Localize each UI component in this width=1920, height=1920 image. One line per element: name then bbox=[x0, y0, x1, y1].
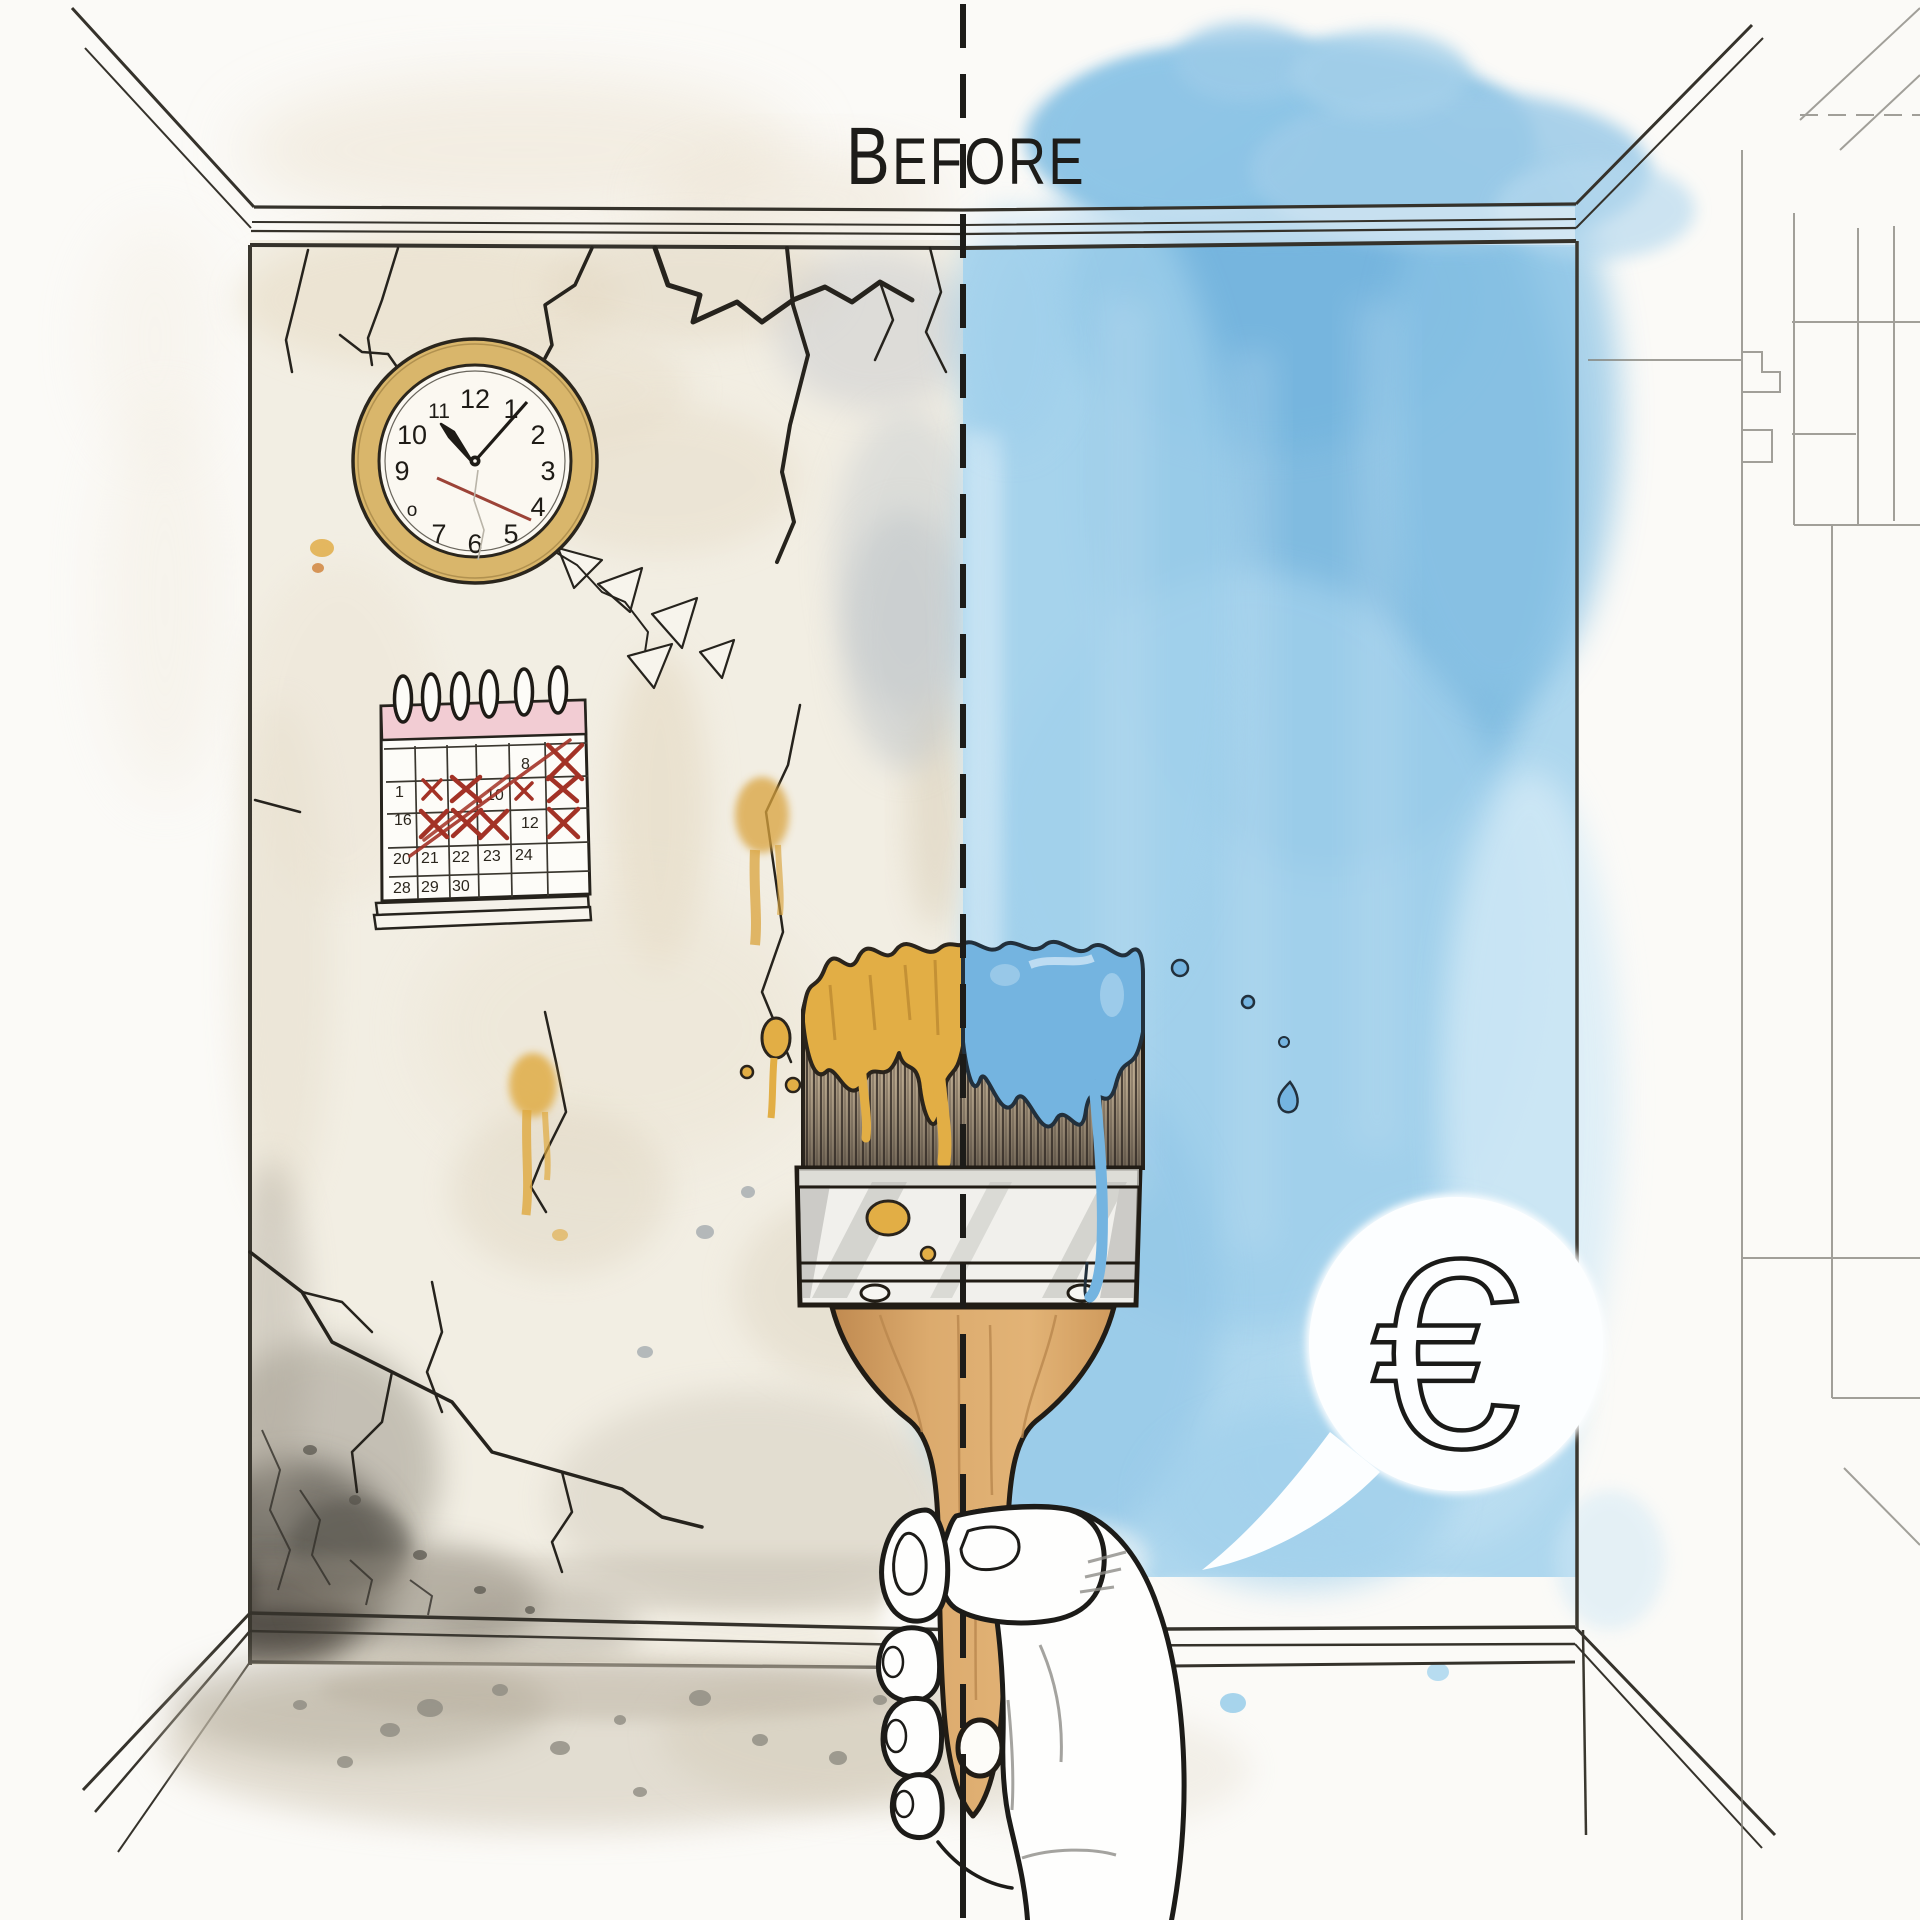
svg-text:6: 6 bbox=[467, 529, 482, 559]
svg-text:24: 24 bbox=[515, 847, 533, 864]
svg-text:12: 12 bbox=[460, 384, 490, 414]
svg-text:10: 10 bbox=[397, 420, 427, 450]
svg-text:4: 4 bbox=[530, 492, 545, 522]
svg-text:2: 2 bbox=[530, 420, 545, 450]
svg-text:16: 16 bbox=[394, 812, 412, 829]
svg-text:3: 3 bbox=[540, 456, 555, 486]
svg-text:9: 9 bbox=[394, 456, 409, 486]
svg-text:12: 12 bbox=[521, 815, 539, 832]
svg-text:11: 11 bbox=[428, 400, 450, 423]
svg-text:€: € bbox=[1371, 1204, 1521, 1505]
svg-text:5: 5 bbox=[503, 519, 518, 549]
svg-text:22: 22 bbox=[452, 849, 470, 866]
svg-text:29: 29 bbox=[421, 879, 439, 896]
svg-text:21: 21 bbox=[421, 850, 439, 867]
svg-text:23: 23 bbox=[483, 848, 501, 865]
svg-text:20: 20 bbox=[393, 851, 411, 868]
svg-text:30: 30 bbox=[452, 878, 470, 895]
svg-text:o: o bbox=[407, 500, 418, 521]
svg-text:28: 28 bbox=[393, 880, 411, 897]
svg-text:1: 1 bbox=[395, 784, 404, 801]
svg-text:7: 7 bbox=[431, 519, 446, 549]
